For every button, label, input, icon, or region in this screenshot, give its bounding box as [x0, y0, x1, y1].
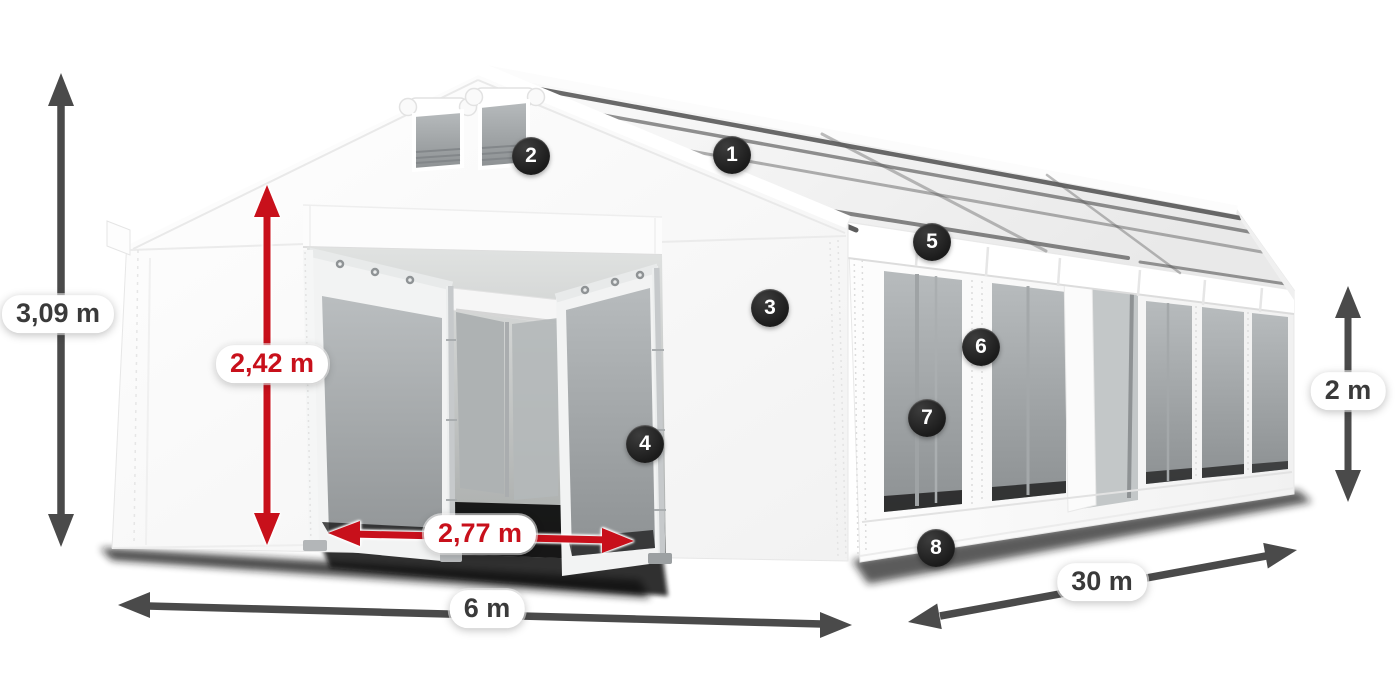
callout-5: 5 [913, 223, 951, 261]
right-door-panel [556, 266, 672, 576]
dim-label-total-height: 3,09 m [2, 295, 114, 333]
dim-label-width: 6 m [450, 590, 525, 628]
eave-overhang [107, 221, 130, 255]
callout-6: 6 [962, 328, 1000, 366]
dim-label-door-width: 2,77 m [424, 515, 536, 553]
tent-illustration [0, 0, 1400, 700]
dim-label-door-height: 2,42 m [216, 345, 328, 383]
callout-4: 4 [626, 425, 664, 463]
callout-7: 7 [908, 399, 946, 437]
dim-label-length: 30 m [1057, 563, 1147, 601]
tent-dimension-diagram: 3,09 m 2,42 m 2,77 m 6 m 30 m 2 m 1 2 3 … [0, 0, 1400, 700]
callout-1: 1 [713, 136, 751, 174]
callout-8: 8 [917, 529, 955, 567]
callout-3: 3 [751, 289, 789, 327]
dim-label-side-height: 2 m [1311, 372, 1386, 410]
callout-2: 2 [512, 137, 550, 175]
